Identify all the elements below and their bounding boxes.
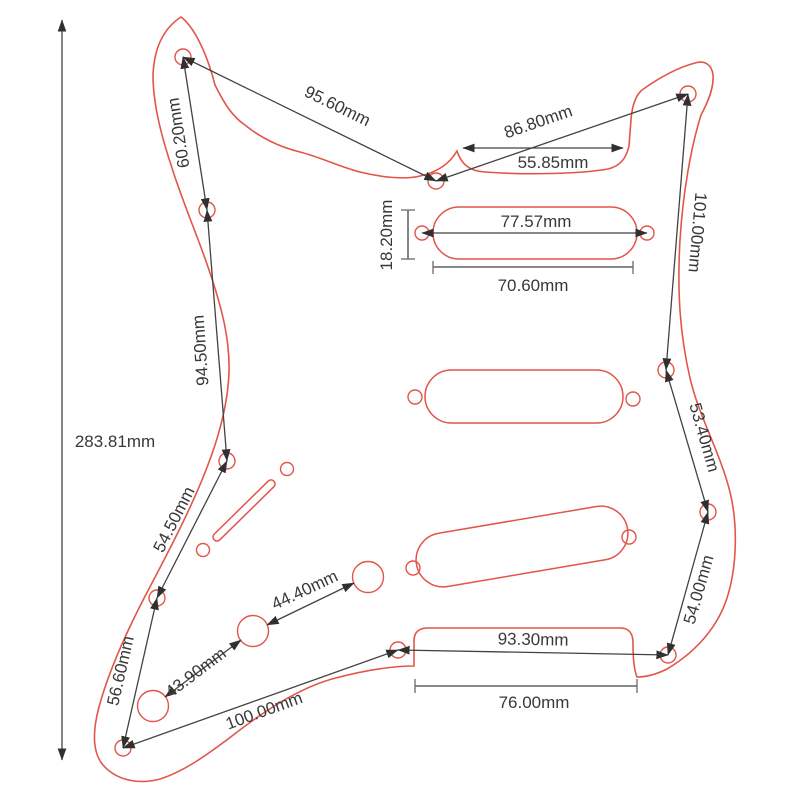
dimension-neck-pocket-width: 55.85mm <box>463 148 623 172</box>
bridge-pickup-cutout <box>412 502 632 591</box>
dimension-left-lower-screws: 56.60mm <box>103 598 157 748</box>
dimension-bottom-diagonal: 100.00mm <box>123 650 398 748</box>
switch-screw-hole <box>197 544 210 557</box>
dimension-right-upper-screws: 101.00mm <box>666 94 710 370</box>
dim-label-43-90: 43.90mm <box>162 644 230 702</box>
diagram-canvas: 283.81mm 60.20mm 94.50mm 54.50mm 56.60mm… <box>0 0 800 800</box>
dim-label-53-40: 53.40mm <box>685 401 723 474</box>
dimension-right-mid-screws: 53.40mm <box>666 370 723 512</box>
dim-label-77-57: 77.57mm <box>501 212 572 231</box>
dim-label-overall-height: 283.81mm <box>75 432 155 451</box>
dimension-bridge-notch-width: 76.00mm <box>415 679 637 712</box>
pickup-screw-hole <box>408 390 422 404</box>
dim-label-54-50: 54.50mm <box>150 484 199 556</box>
dimension-pot-spacing-2: 44.40mm <box>267 566 354 625</box>
dimension-upper-horn-screws: 60.20mm <box>164 57 207 210</box>
dim-label-93-30: 93.30mm <box>497 629 568 649</box>
dim-label-94-50: 94.50mm <box>189 314 213 386</box>
dim-label-95-60: 95.60mm <box>301 82 373 130</box>
dimension-pot-spacing-1: 43.90mm <box>162 640 241 702</box>
dim-label-76-00: 76.00mm <box>499 693 570 712</box>
pickguard-dimension-diagram: 283.81mm 60.20mm 94.50mm 54.50mm 56.60mm… <box>0 0 800 800</box>
dim-label-18-20: 18.20mm <box>377 200 396 271</box>
dimension-left-mid-screws: 54.50mm <box>150 461 227 598</box>
dim-label-70-60: 70.60mm <box>498 276 569 295</box>
dim-label-86-80: 86.80mm <box>502 101 575 142</box>
dim-label-54-00: 54.00mm <box>680 553 718 626</box>
switch-screw-hole <box>281 463 294 476</box>
dim-label-101-00: 101.00mm <box>685 192 711 274</box>
dimension-pickup-screw-span: 77.57mm <box>422 212 647 233</box>
dim-label-100-00: 100.00mm <box>223 688 305 733</box>
dimension-pickup-length: 70.60mm <box>433 261 633 295</box>
dimension-overall-height: 283.81mm <box>62 20 155 760</box>
dimension-pickup-height: 18.20mm <box>377 200 415 271</box>
pickup-screw-hole <box>626 392 640 406</box>
pot-hole-tone1 <box>238 616 269 647</box>
switch-slot <box>211 478 276 542</box>
dimension-bridge-screw-span: 93.30mm <box>398 629 668 655</box>
dimension-horn-to-neck-diagonal: 95.60mm <box>183 57 436 181</box>
pickup-screw-hole <box>622 530 636 544</box>
dim-label-55-85: 55.85mm <box>518 153 589 172</box>
dimension-right-lower-screws: 54.00mm <box>668 512 718 655</box>
pot-hole-tone2 <box>353 562 384 593</box>
pot-hole-volume <box>138 691 169 722</box>
dim-label-56-60: 56.60mm <box>103 634 137 707</box>
middle-pickup-cutout <box>425 370 623 423</box>
